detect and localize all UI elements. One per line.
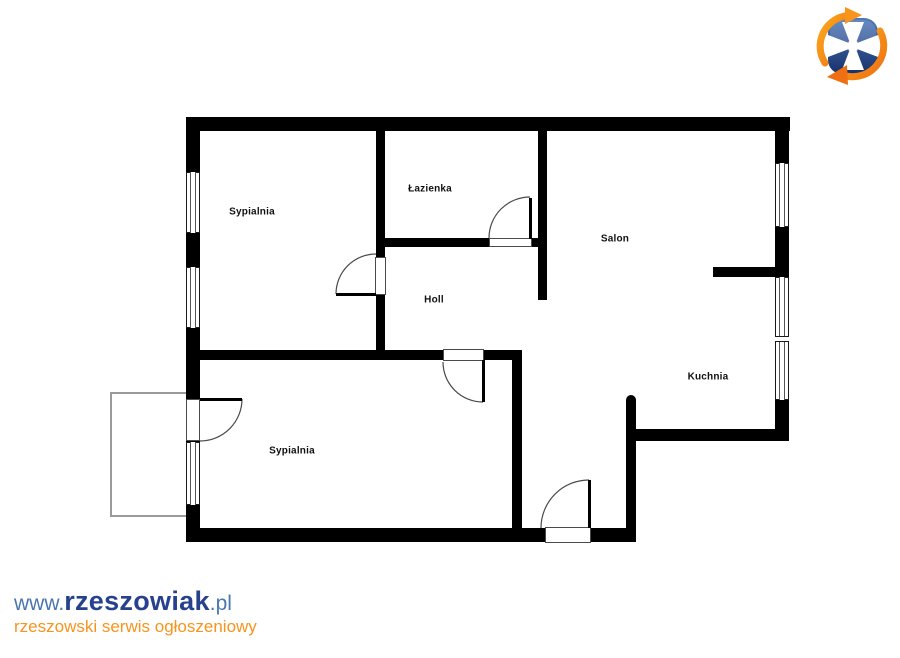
room-label-holl: Holl [424, 295, 444, 306]
site-url: www.rzeszowiak.pl [14, 588, 257, 615]
rzeszowiak-logo [812, 6, 892, 86]
site-name: rzeszowiak [64, 588, 210, 615]
site-watermark: www.rzeszowiak.pl rzeszowski serwis ogło… [14, 588, 257, 635]
door-leaf-entrance [588, 480, 591, 528]
room-label-sypialnia-1: Sypialnia [229, 207, 275, 218]
url-prefix: www. [14, 593, 64, 614]
door-swing-arcs [0, 0, 900, 658]
url-suffix: .pl [210, 593, 232, 614]
room-label-sypialnia-2: Sypialnia [269, 446, 315, 457]
door-arc-balcony [200, 399, 242, 441]
door-leaf-balcony [200, 398, 242, 401]
room-label-lazienka: Łazienka [408, 184, 452, 195]
door-leaf-bedroom1 [336, 293, 376, 296]
floor-plan: Sypialnia Łazienka Holl Salon Kuchnia Sy… [0, 0, 900, 658]
door-leaf-bedroom2 [482, 360, 485, 402]
room-label-kuchnia: Kuchnia [688, 372, 729, 383]
door-leaf-bathroom [529, 198, 532, 239]
site-tagline: rzeszowski serwis ogłoszeniowy [14, 618, 257, 635]
door-arc-bedroom2 [443, 362, 483, 402]
door-arc-entrance [541, 480, 589, 528]
room-label-salon: Salon [601, 234, 629, 245]
door-arc-bedroom1 [336, 254, 376, 294]
door-arc-bathroom [489, 197, 530, 238]
